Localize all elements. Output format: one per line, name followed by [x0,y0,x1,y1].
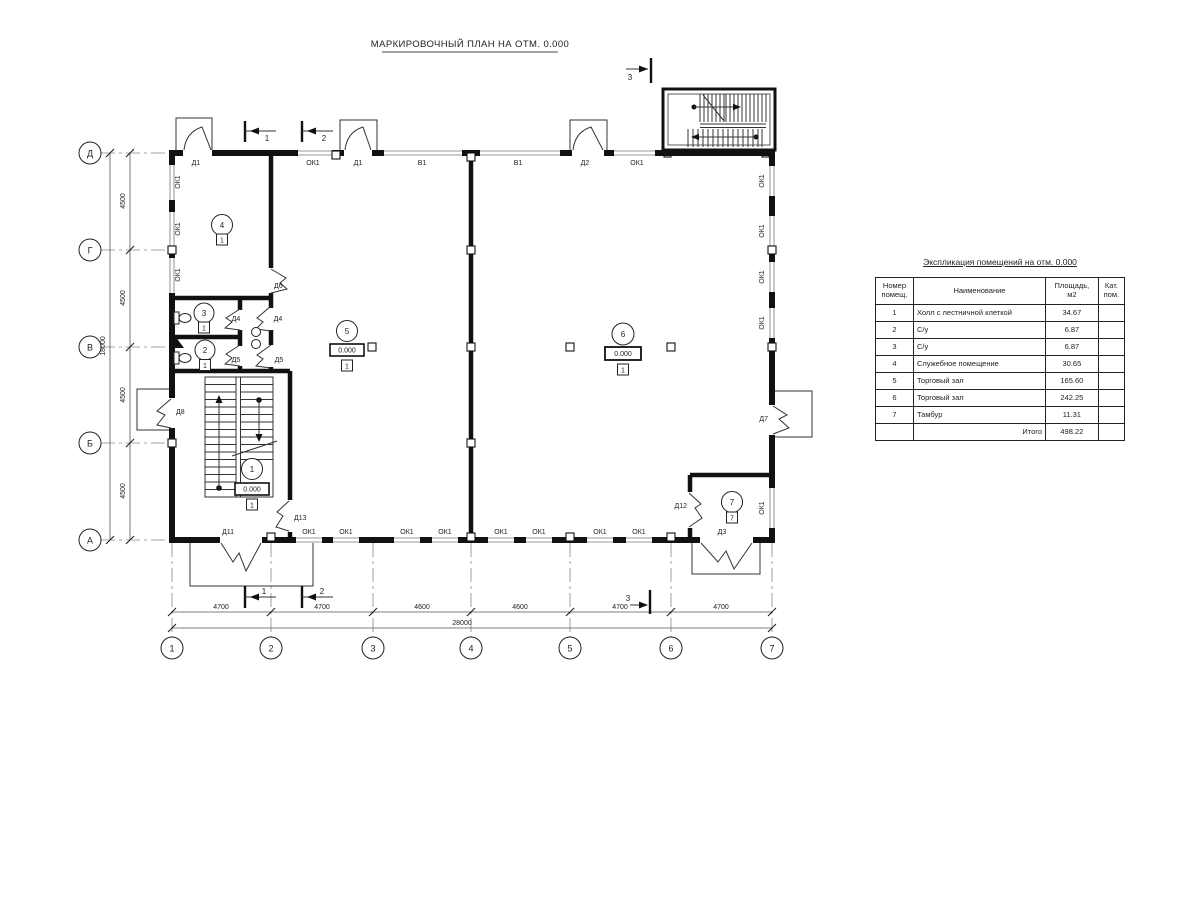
window-label-v1a: В1 [418,160,427,167]
grid-col-6: 6 [668,644,673,654]
section-3-bottom: 3 [626,594,631,603]
room-area-cell: 165.60 [1046,373,1099,390]
door-label-d6: Д6 [274,283,283,290]
header-room-area: Площадь, м2 [1046,278,1099,305]
window-label-ok1-b1: ОК1 [302,529,316,536]
total-category-cell [1098,424,1124,441]
floor-plan-drawing: МАРКИРОВОЧНЫЙ ПЛАН НА ОТМ. 0.000 4500 45… [0,0,1200,900]
grid-col-4: 4 [468,644,473,654]
door-label-d8: Д8 [176,409,185,416]
window-label-ok1-right1: ОК1 [759,174,766,188]
section-1-bottom: 1 [262,587,267,596]
section-3-top: 3 [628,73,633,82]
room-1-floor-type: 1 [250,503,254,510]
dimension-lines [106,149,776,632]
window-label-ok1-b5: ОК1 [494,529,508,536]
section-1-top: 1 [265,134,270,143]
porches [137,118,812,586]
grid-bubbles: Д Г В Б А 1 2 3 4 5 6 7 [79,142,783,659]
dim-4600-1: 4600 [414,604,430,611]
room-name-cell: Служебное помещение [913,356,1045,373]
door-label-d11: Д11 [222,529,234,536]
room-1-elevation: 0.000 [243,487,261,494]
grid-lines [101,153,772,637]
room-category-cell [1098,339,1124,356]
door-label-d2: Д2 [581,160,590,167]
room-category-cell [1098,356,1124,373]
room-name-cell: Холл с лестничной клеткой [913,305,1045,322]
dim-4500-2: 4500 [120,290,127,306]
window-label-v1b: В1 [514,160,523,167]
window-label-ok1-right4: ОК1 [759,316,766,330]
room-category-cell [1098,305,1124,322]
dim-4700-4: 4700 [713,604,729,611]
room-3-number: 3 [202,309,207,318]
room-number-cell: 2 [876,322,914,339]
total-empty-cell [876,424,914,441]
room-6-elevation: 0.000 [614,351,632,358]
window-label-ok1-right2: ОК1 [759,224,766,238]
room-area-cell: 242.25 [1046,390,1099,407]
room-schedule-table: Номер помещ. Наименование Площадь, м2 Ка… [875,277,1125,441]
door-label-d7: Д7 [759,416,768,423]
room-2-floor-type: 1 [203,363,207,370]
grid-col-7: 7 [769,644,774,654]
drawing-sheet: МАРКИРОВОЧНЫЙ ПЛАН НА ОТМ. 0.000 4500 45… [0,0,1200,900]
window-label-ok1-tambour: ОК1 [759,501,766,515]
window-label-ok1-b6: ОК1 [532,529,546,536]
internal-stair [205,377,277,497]
door-label-d5a: Д5 [232,357,241,364]
dim-28000: 28000 [452,620,472,627]
room-number-cell: 4 [876,356,914,373]
dim-4700-1: 4700 [213,604,229,611]
grid-row-b: Б [87,439,93,449]
header-room-category: Кат. пом. [1098,278,1124,305]
grid-row-v: В [87,343,93,353]
window-label-ok1-left1: ОК1 [175,175,182,189]
room-number-cell: 7 [876,407,914,424]
grid-col-2: 2 [268,644,273,654]
room-area-cell: 30.65 [1046,356,1099,373]
table-row: 7 Тамбур 11.31 [876,407,1125,424]
room-number-cell: 5 [876,373,914,390]
room-area-cell: 34.67 [1046,305,1099,322]
room-name-cell: С/у [913,322,1045,339]
grid-row-a: А [87,536,93,546]
header-room-number: Номер помещ. [876,278,914,305]
room-name-cell: Торговый зал [913,390,1045,407]
window-label-ok1-b3: ОК1 [400,529,414,536]
section-2-bottom: 2 [320,587,325,596]
room-category-cell [1098,407,1124,424]
room-1-number: 1 [250,465,255,474]
door-label-d4a: Д4 [232,316,241,323]
external-stairwell [663,89,775,157]
room-number-cell: 1 [876,305,914,322]
room-category-cell [1098,390,1124,407]
table-row: 5 Торговый зал 165.60 [876,373,1125,390]
room-4-floor-type: 1 [220,238,224,245]
room-7-floor-type: 7 [730,516,734,523]
room-5-floor-type: 1 [345,364,349,371]
door-label-d4b: Д4 [274,316,283,323]
room-category-cell [1098,322,1124,339]
door-label-d3: Д3 [718,529,727,536]
room-number-cell: 6 [876,390,914,407]
dim-4500-4: 4500 [120,483,127,499]
table-row: 6 Торговый зал 242.25 [876,390,1125,407]
room-name-cell: С/у [913,339,1045,356]
dimension-labels: 4500 4500 4500 4500 18000 4700 4700 4600… [100,193,729,627]
room-area-cell: 6.87 [1046,339,1099,356]
total-label: Итого [913,424,1045,441]
door-label-d1b: Д1 [354,160,363,167]
grid-col-1: 1 [169,644,174,654]
door-label-d13: Д13 [294,515,307,522]
room-name-cell: Торговый зал [913,373,1045,390]
table-row: 3 С/у 6.87 [876,339,1125,356]
window-label-ok1-b2: ОК1 [339,529,353,536]
room-6-floor-type: 1 [621,368,625,375]
table-row: 4 Служебное помещение 30.65 [876,356,1125,373]
grid-col-3: 3 [370,644,375,654]
table-header-row: Номер помещ. Наименование Площадь, м2 Ка… [876,278,1125,305]
dim-4700-3: 4700 [612,604,628,611]
room-name-cell: Тамбур [913,407,1045,424]
table-row: 2 С/у 6.87 [876,322,1125,339]
window-label-ok1-b4: ОК1 [438,529,452,536]
dim-4500-3: 4500 [120,387,127,403]
room-category-cell [1098,373,1124,390]
grid-row-d: Д [87,149,93,159]
header-room-name: Наименование [913,278,1045,305]
window-label-ok1-top2: ОК1 [630,160,644,167]
window-label-ok1-left3: ОК1 [175,268,182,282]
room-3-floor-type: 1 [202,326,206,333]
door-label-d1a: Д1 [192,160,201,167]
room-schedule: Экспликация помещений на отм. 0.000 Номе… [875,257,1125,441]
room-5-elevation: 0.000 [338,348,356,355]
door-label-d5b: Д5 [275,357,284,364]
total-value: 498.22 [1046,424,1099,441]
dim-4700-2: 4700 [314,604,330,611]
room-area-cell: 6.87 [1046,322,1099,339]
window-label-ok1-top1: ОК1 [306,160,320,167]
grid-row-g: Г [88,246,93,256]
grid-col-5: 5 [567,644,572,654]
dim-4500-1: 4500 [120,193,127,209]
section-2-top: 2 [322,134,327,143]
room-5-number: 5 [345,327,350,336]
room-area-cell: 11.31 [1046,407,1099,424]
door-label-d12: Д12 [674,503,687,510]
window-label-ok1-right3: ОК1 [759,270,766,284]
room-2-number: 2 [203,346,208,355]
window-label-ok1-b7: ОК1 [593,529,607,536]
plan-title: МАРКИРОВОЧНЫЙ ПЛАН НА ОТМ. 0.000 [371,38,569,50]
room-4-number: 4 [220,221,225,230]
room-schedule-title: Экспликация помещений на отм. 0.000 [875,257,1125,267]
room-number-cell: 3 [876,339,914,356]
dim-4600-2: 4600 [512,604,528,611]
room-7-number: 7 [730,498,735,507]
room-6-number: 6 [621,330,626,339]
table-total-row: Итого 498.22 [876,424,1125,441]
table-row: 1 Холл с лестничной клеткой 34.67 [876,305,1125,322]
window-label-ok1-left2: ОК1 [175,222,182,236]
window-label-ok1-b8: ОК1 [632,529,646,536]
